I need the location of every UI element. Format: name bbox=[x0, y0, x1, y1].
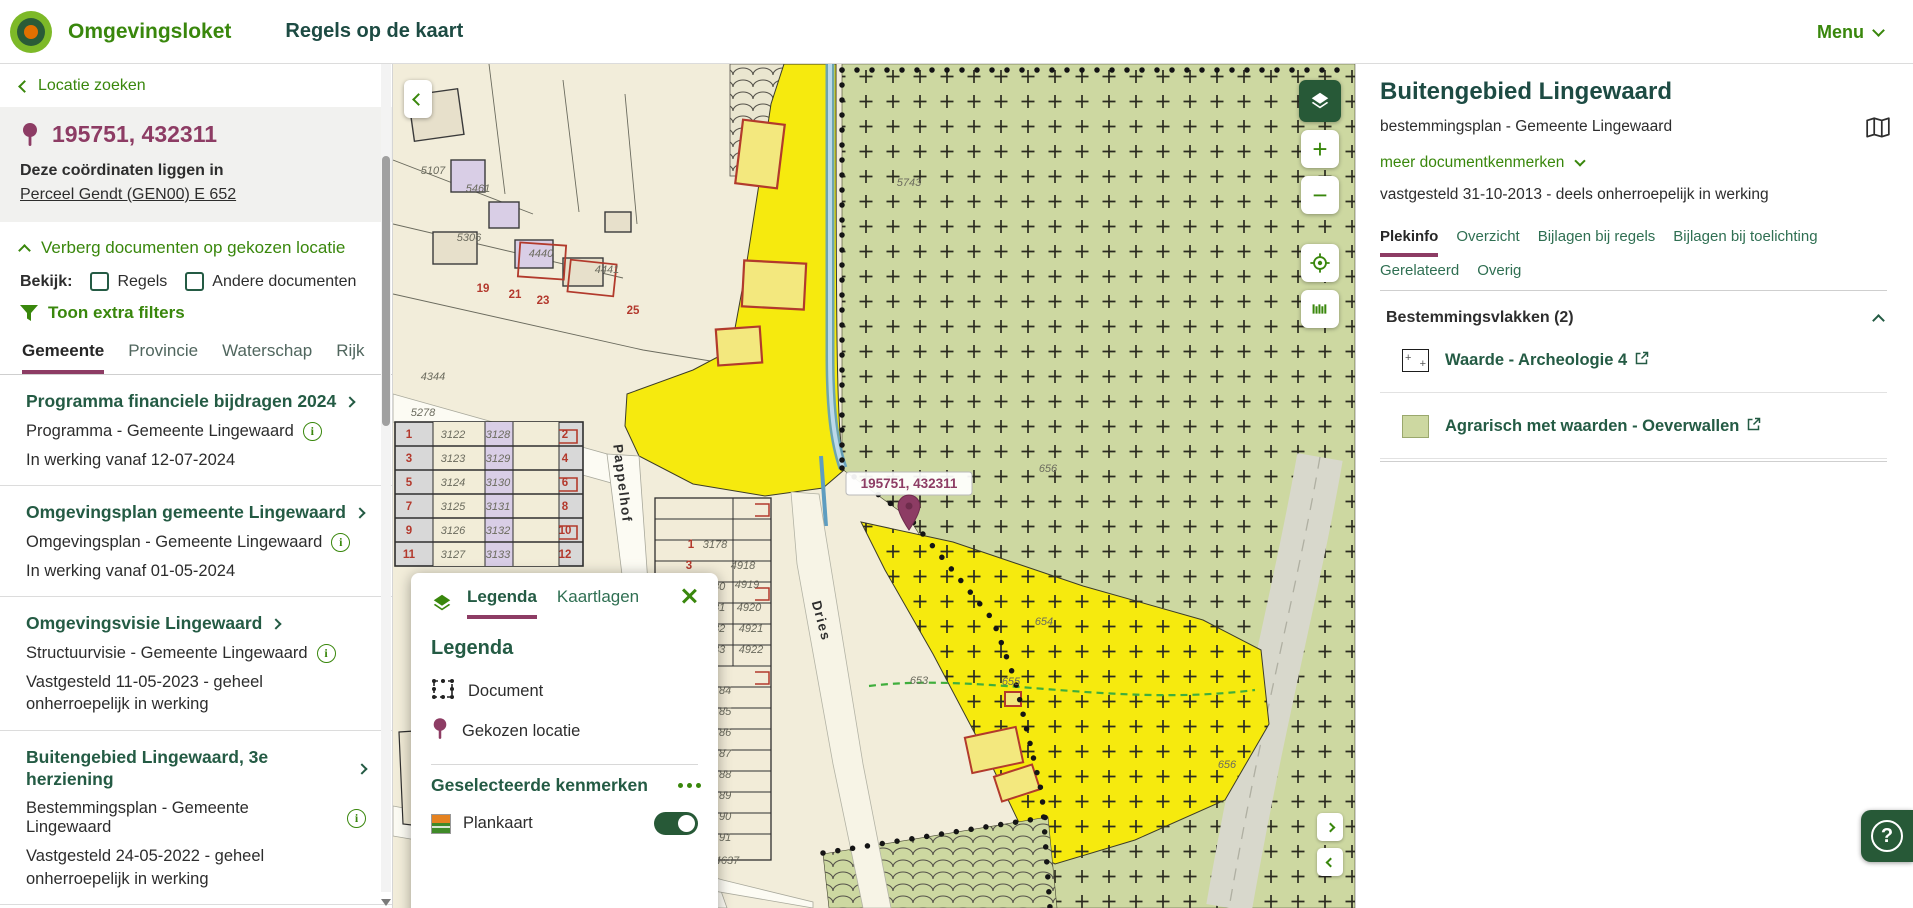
map-label: 3122 bbox=[441, 429, 465, 441]
map-label: 23 bbox=[537, 295, 550, 307]
map-label: 3130 bbox=[486, 477, 511, 489]
document-title-text: Omgevingsplan gemeente Lingewaard bbox=[26, 502, 346, 524]
crosshair-icon bbox=[1309, 252, 1331, 274]
location-pin-icon bbox=[431, 717, 449, 741]
layers-button[interactable] bbox=[1299, 80, 1341, 122]
menu-label: Menu bbox=[1817, 22, 1864, 43]
map-label: 3125 bbox=[441, 501, 466, 513]
scrollbar-thumb[interactable] bbox=[382, 156, 390, 426]
document-subtitle-text: Structuurvisie - Gemeente Lingewaard bbox=[26, 644, 308, 663]
collapse-section-icon[interactable] bbox=[1872, 314, 1885, 327]
extra-filters-label: Toon extra filters bbox=[48, 303, 185, 323]
document-status: vastgesteld 31-10-2013 - deels onherroep… bbox=[1380, 186, 1887, 204]
panel-title: Buitengebied Lingewaard bbox=[1380, 78, 1887, 106]
external-link-icon-wrap bbox=[1747, 417, 1761, 436]
document-title-link[interactable]: Omgevingsplan gemeente Lingewaard bbox=[26, 502, 366, 524]
map-label: 11 bbox=[403, 549, 416, 561]
map-label: 3178 bbox=[703, 539, 728, 551]
location-summary: 195751, 432311 Deze coördinaten liggen i… bbox=[0, 107, 392, 222]
map-canvas[interactable]: 5107546153064440444119212325434452781312… bbox=[393, 64, 1355, 908]
close-icon[interactable] bbox=[680, 587, 698, 605]
bestemmingsvlak-link[interactable]: Agrarisch met waarden - Oeverwallen bbox=[1445, 417, 1761, 436]
document-subtitle-text: Bestemmingsplan - Gemeente Lingewaard bbox=[26, 799, 338, 837]
bestemmingsvlakken-heading: Bestemmingsvlakken (2) bbox=[1386, 309, 1574, 327]
legend-item-label: Document bbox=[468, 682, 543, 701]
document-subtitle-text: Programma - Gemeente Lingewaard bbox=[26, 422, 294, 441]
document-subtitle-text: Omgevingsplan - Gemeente Lingewaard bbox=[26, 533, 322, 552]
sidebar-scrollbar[interactable] bbox=[381, 64, 391, 892]
filter-icon bbox=[20, 305, 38, 322]
legend-item: Gekozen locatie bbox=[431, 711, 698, 752]
map-label: 6 bbox=[562, 477, 568, 489]
document-title-link[interactable]: Buitengebied Lingewaard, 3e herziening bbox=[26, 747, 366, 791]
zoom-in-button[interactable]: + bbox=[1301, 130, 1339, 168]
tab-gemeente[interactable]: Gemeente bbox=[22, 341, 104, 374]
map-label: 21 bbox=[509, 289, 522, 301]
archeologie-swatch-icon bbox=[1402, 349, 1429, 372]
checkbox-regels[interactable] bbox=[90, 272, 109, 291]
info-icon[interactable]: i bbox=[331, 533, 350, 552]
chevron-right-icon bbox=[356, 763, 367, 774]
map-label: 5743 bbox=[897, 177, 922, 189]
map-label: 5461 bbox=[466, 183, 490, 195]
map-label: 3 bbox=[406, 453, 412, 465]
info-icon[interactable]: i bbox=[303, 422, 322, 441]
plankaart-thumbnail-icon bbox=[431, 814, 451, 834]
scrollbar-down-arrow[interactable] bbox=[381, 899, 391, 906]
question-mark-icon: ? bbox=[1871, 820, 1903, 852]
document-status: In werking vanaf 12-07-2024 bbox=[26, 449, 366, 471]
detail-tabs: PlekinfoOverzichtBijlagen bij regelsBijl… bbox=[1380, 222, 1887, 291]
map-label: 5306 bbox=[457, 232, 482, 244]
legend-tabs: LegendaKaartlagen bbox=[467, 587, 639, 619]
menu-button[interactable]: Menu bbox=[1817, 0, 1883, 64]
map-label: 2 bbox=[562, 429, 568, 441]
map-label: 5107 bbox=[421, 165, 446, 177]
document-subtitle: Structuurvisie - Gemeente Lingewaardi bbox=[26, 644, 366, 663]
map-label: 19 bbox=[477, 283, 490, 295]
map-label: 8 bbox=[562, 501, 569, 513]
map-controls: + − bbox=[1299, 80, 1341, 336]
map-label: 656 bbox=[1218, 759, 1237, 771]
zoom-out-button[interactable]: − bbox=[1301, 176, 1339, 214]
selected-features-heading: Geselecteerde kenmerken bbox=[431, 775, 648, 796]
divider bbox=[1380, 461, 1887, 462]
map-label: 4637 bbox=[715, 855, 740, 867]
map-label: 3 bbox=[686, 560, 692, 572]
map-label: 4922 bbox=[739, 644, 763, 656]
tab-waterschap[interactable]: Waterschap bbox=[222, 341, 312, 374]
detail-tab-plekinfo[interactable]: Plekinfo bbox=[1380, 222, 1438, 257]
map-label: 4344 bbox=[421, 371, 445, 383]
tab-rijk[interactable]: Rijk bbox=[336, 341, 364, 374]
legend-item: Document bbox=[431, 672, 698, 711]
omgevingsloket-logo-icon bbox=[10, 11, 52, 53]
map-label: 3127 bbox=[441, 549, 466, 561]
document-title-text: Omgevingsvisie Lingewaard bbox=[26, 613, 262, 635]
legend-tab-kaartlagen[interactable]: Kaartlagen bbox=[557, 587, 639, 619]
external-link-icon bbox=[1635, 351, 1649, 365]
checkbox-andere-documenten[interactable] bbox=[185, 272, 204, 291]
layers-icon bbox=[1309, 90, 1331, 112]
chevron-right-icon bbox=[271, 619, 282, 630]
selected-feature-row: Plankaart bbox=[431, 812, 698, 835]
detail-tab-bijlagen-bij-toelichting[interactable]: Bijlagen bij toelichting bbox=[1673, 222, 1817, 257]
map-label: 4440 bbox=[529, 248, 554, 260]
map-label: 10 bbox=[559, 525, 572, 537]
next-feature-button[interactable] bbox=[1317, 813, 1343, 841]
map-label: 4918 bbox=[731, 560, 756, 572]
ruler-icon bbox=[1309, 298, 1331, 320]
document-subtitle: Bestemmingsplan - Gemeente Lingewaardi bbox=[26, 799, 366, 837]
chevron-up-icon bbox=[18, 244, 31, 257]
bestemmingsvlak-row: Agrarisch met waarden - Oeverwallen bbox=[1380, 393, 1887, 459]
panel-nav-buttons bbox=[1317, 806, 1343, 876]
chevron-right-icon bbox=[345, 396, 356, 407]
map-label: 3124 bbox=[441, 477, 465, 489]
document-title-text: Buitengebied Lingewaard, 3e herziening bbox=[26, 747, 348, 791]
map-label: 3131 bbox=[486, 501, 510, 513]
nav-item-regels-op-de-kaart[interactable]: Regels op de kaart bbox=[285, 20, 463, 43]
parcel-link[interactable]: Perceel Gendt (GEN00) E 652 bbox=[20, 186, 236, 204]
back-to-location-search-link[interactable]: Locatie zoeken bbox=[0, 64, 392, 107]
bestemmingsvlak-label: Agrarisch met waarden - Oeverwallen bbox=[1445, 417, 1739, 436]
map-label: 3133 bbox=[486, 549, 511, 561]
document-status: In werking vanaf 01-05-2024 bbox=[26, 560, 366, 582]
panel-subtitle: bestemmingsplan - Gemeente Lingewaard bbox=[1380, 118, 1887, 136]
chevron-right-icon bbox=[354, 507, 365, 518]
map-label: 5278 bbox=[411, 407, 436, 419]
map-label: 9 bbox=[406, 525, 412, 537]
detail-tab-overzicht[interactable]: Overzicht bbox=[1456, 222, 1519, 257]
selected-coordinates: 195751, 432311 bbox=[52, 121, 217, 148]
map-label: 12 bbox=[559, 549, 572, 561]
map-label: 4919 bbox=[735, 579, 759, 591]
legend-heading: Legenda bbox=[431, 637, 698, 660]
layer-toggle[interactable] bbox=[654, 812, 698, 835]
info-icon[interactable]: i bbox=[347, 809, 366, 828]
back-link-label: Locatie zoeken bbox=[38, 77, 146, 95]
map-icon[interactable] bbox=[1865, 116, 1891, 145]
legend-popup: LegendaKaartlagen Legenda DocumentGekoze… bbox=[411, 573, 718, 908]
bestemmingsvlak-label: Waarde - Archeologie 4 bbox=[1445, 351, 1627, 370]
locate-me-button[interactable] bbox=[1301, 244, 1339, 282]
detail-tab-gerelateerd[interactable]: Gerelateerd bbox=[1380, 256, 1459, 291]
map-label: 4 bbox=[562, 453, 569, 465]
map-label: 3123 bbox=[441, 453, 466, 465]
hide-documents-label: Verberg documenten op gekozen locatie bbox=[41, 238, 345, 258]
chevron-left-icon bbox=[412, 93, 425, 106]
map-label: 5 bbox=[406, 477, 413, 489]
document-status: Vastgesteld 11-05-2023 - geheel onherroe… bbox=[26, 671, 366, 716]
map-label: 3132 bbox=[486, 525, 510, 537]
more-document-properties-link[interactable]: meer documentkenmerken bbox=[1380, 154, 1887, 172]
document-card: Omgevingsplan gemeente LingewaardOmgevin… bbox=[0, 486, 392, 597]
map-label: 1 bbox=[406, 429, 413, 441]
checkbox-label: Andere documenten bbox=[212, 273, 356, 291]
document-subtitle: Programma - Gemeente Lingewaardi bbox=[26, 422, 366, 441]
external-link-icon bbox=[1747, 417, 1761, 431]
hide-documents-toggle[interactable]: Verberg documenten op gekozen locatie bbox=[0, 222, 392, 266]
document-card: Buitengebied Lingewaard, 3e herzieningBe… bbox=[0, 731, 392, 905]
map-label: 3126 bbox=[441, 525, 466, 537]
map-label: 4921 bbox=[739, 623, 763, 635]
chevron-left-icon bbox=[18, 80, 31, 93]
agrarisch-swatch-icon bbox=[1402, 415, 1429, 438]
checkbox-label: Regels bbox=[117, 273, 167, 291]
map-label: 25 bbox=[627, 305, 640, 317]
collapse-sidebar-button[interactable] bbox=[404, 80, 432, 118]
document-list: Programma financiele bijdragen 2024Progr… bbox=[0, 375, 392, 908]
more-options-icon[interactable] bbox=[687, 783, 692, 788]
legend-tab-legenda[interactable]: Legenda bbox=[467, 587, 537, 619]
document-title-link[interactable]: Omgevingsvisie Lingewaard bbox=[26, 613, 366, 635]
location-pin-wrap bbox=[431, 717, 449, 746]
map-label: 7 bbox=[406, 501, 412, 513]
legend-item-label: Gekozen locatie bbox=[462, 722, 580, 741]
left-sidebar: Locatie zoeken 195751, 432311 Deze coörd… bbox=[0, 64, 393, 908]
map-label: 1 bbox=[688, 539, 695, 551]
tab-provincie[interactable]: Provincie bbox=[128, 341, 198, 374]
document-title-link[interactable]: Programma financiele bijdragen 2024 bbox=[26, 391, 366, 413]
document-outline-wrap bbox=[431, 678, 455, 705]
divider bbox=[431, 764, 698, 765]
document-status: Vastgesteld 24-05-2022 - geheel onherroe… bbox=[26, 845, 366, 890]
top-header: Omgevingsloket Regels op de kaart Menu bbox=[0, 0, 1913, 64]
map-label: 654 bbox=[1035, 616, 1053, 628]
detail-tab-bijlagen-bij-regels[interactable]: Bijlagen bij regels bbox=[1538, 222, 1656, 257]
feature-label: Plankaart bbox=[463, 814, 533, 833]
document-subtitle: Omgevingsplan - Gemeente Lingewaardi bbox=[26, 533, 366, 552]
document-card: Programma financiele bijdragen 2024Progr… bbox=[0, 375, 392, 486]
document-outline-icon bbox=[431, 678, 455, 700]
map-label: 4920 bbox=[737, 602, 762, 614]
document-title-text: Programma financiele bijdragen 2024 bbox=[26, 391, 336, 413]
detail-panel: Buitengebied Lingewaard bestemmingsplan … bbox=[1355, 64, 1913, 908]
svg-text:195751, 432311: 195751, 432311 bbox=[861, 476, 958, 491]
layers-icon bbox=[431, 592, 453, 614]
map-label: 3128 bbox=[486, 429, 511, 441]
map-label: 653 bbox=[910, 675, 929, 687]
chevron-down-icon bbox=[1872, 24, 1885, 37]
help-button[interactable]: ? bbox=[1861, 810, 1913, 862]
detail-tab-overig[interactable]: Overig bbox=[1477, 256, 1521, 291]
previous-feature-button[interactable] bbox=[1317, 848, 1343, 876]
info-icon[interactable]: i bbox=[317, 644, 336, 663]
map-label: 655 bbox=[1002, 676, 1021, 688]
bestemmingsvlak-link[interactable]: Waarde - Archeologie 4 bbox=[1445, 351, 1649, 370]
map-label: 656 bbox=[1039, 463, 1058, 475]
document-card: Omgevingsvisie LingewaardStructuurvisie … bbox=[0, 597, 392, 730]
bestemmingsvlak-row: Waarde - Archeologie 4 bbox=[1380, 327, 1887, 393]
coordinates-context-label: Deze coördinaten liggen in bbox=[20, 162, 372, 180]
map-label: 4441 bbox=[595, 264, 619, 276]
extra-filters-button[interactable]: Toon extra filters bbox=[0, 295, 392, 333]
view-options-label: Bekijk: bbox=[20, 273, 72, 291]
view-options-row: Bekijk: RegelsAndere documenten bbox=[0, 266, 392, 295]
authority-tabs: GemeenteProvincieWaterschapRijk bbox=[0, 333, 392, 375]
brand-title: Omgevingsloket bbox=[68, 20, 231, 44]
external-link-icon-wrap bbox=[1635, 351, 1649, 370]
map-label: 3129 bbox=[486, 453, 510, 465]
chevron-down-icon bbox=[1575, 155, 1586, 166]
measure-button[interactable] bbox=[1301, 290, 1339, 328]
more-link-label: meer documentkenmerken bbox=[1380, 154, 1564, 172]
app-window: Omgevingsloket Regels op de kaart Menu L… bbox=[0, 0, 1913, 908]
location-pin-icon bbox=[20, 122, 40, 148]
